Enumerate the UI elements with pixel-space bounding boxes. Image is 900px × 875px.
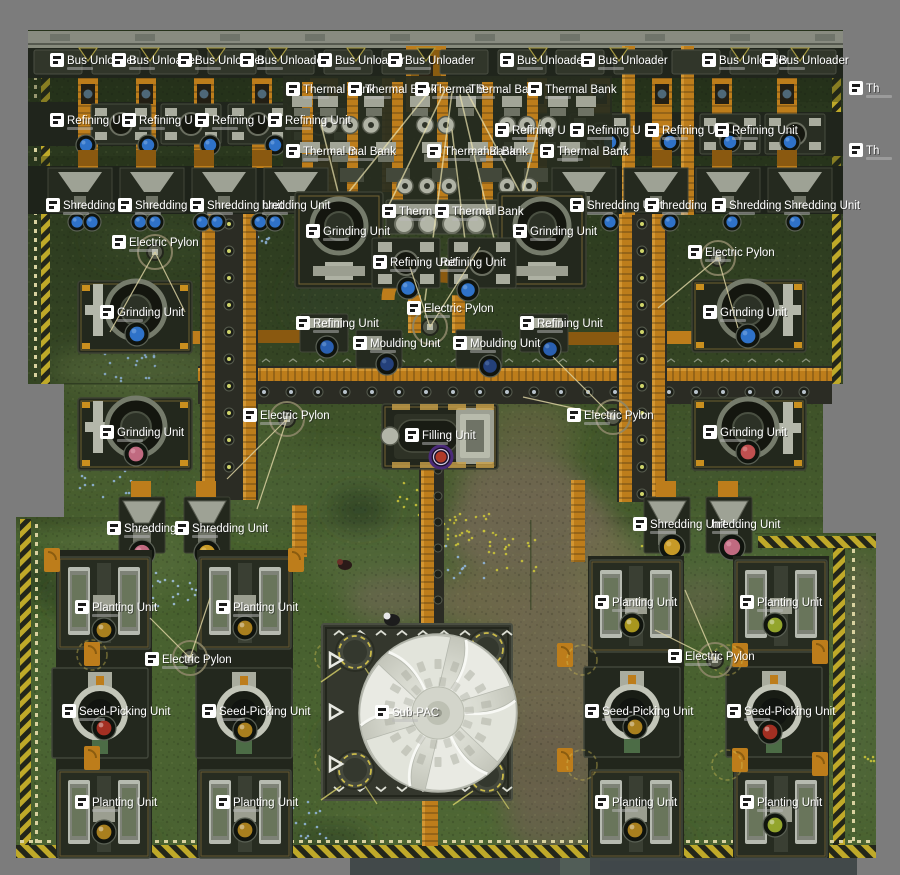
svg-text:Seed-Picking Unit: Seed-Picking Unit <box>79 706 171 718</box>
svg-text:Shredding: Shredding <box>135 200 187 212</box>
svg-text:mal Bank: mal Bank <box>480 146 528 158</box>
svg-text:Refining Unit: Refining Unit <box>732 125 799 137</box>
svg-text:Refining U: Refining U <box>67 115 121 127</box>
svg-text:Shredding: Shredding <box>63 200 115 212</box>
svg-text:Bus Unloader: Bus Unloader <box>517 55 587 67</box>
svg-text:Grinding Unit: Grinding Unit <box>530 226 598 238</box>
svg-text:Refining U: Refining U <box>587 125 641 137</box>
svg-text:Planting Unit: Planting Unit <box>233 797 299 809</box>
svg-text:Refining U: Refining U <box>512 125 566 137</box>
svg-text:Planting Unit: Planting Unit <box>92 602 158 614</box>
svg-text:Bus Unloader: Bus Unloader <box>598 55 668 67</box>
svg-text:Th: Th <box>866 83 879 95</box>
svg-text:hredding Unit: hredding Unit <box>262 200 331 212</box>
svg-text:Electric Pylon: Electric Pylon <box>685 651 755 663</box>
svg-text:Grinding Unit: Grinding Unit <box>323 226 391 238</box>
svg-text:Refining U: Refining U <box>139 115 193 127</box>
svg-text:Bus Unloader: Bus Unloader <box>779 55 849 67</box>
svg-text:Electric Pylon: Electric Pylon <box>260 410 330 422</box>
svg-text:Electric Pylon: Electric Pylon <box>584 410 654 422</box>
svg-text:Electric Pylon: Electric Pylon <box>162 654 232 666</box>
svg-text:Shredding: Shredding <box>729 200 781 212</box>
svg-text:Planting Unit: Planting Unit <box>757 797 823 809</box>
svg-text:Thermal Bank: Thermal Bank <box>557 146 629 158</box>
svg-text:mal Bank: mal Bank <box>348 146 396 158</box>
svg-text:Shredding Unit: Shredding Unit <box>784 200 861 212</box>
svg-text:Planting Unit: Planting Unit <box>92 797 158 809</box>
svg-text:Moulding Unit: Moulding Unit <box>370 338 441 350</box>
svg-text:hredding Unit: hredding Unit <box>712 519 781 531</box>
svg-text:Planting Unit: Planting Unit <box>612 797 678 809</box>
svg-text:Bus Unloader: Bus Unloader <box>67 55 137 67</box>
svg-text:Planting Unit: Planting Unit <box>612 597 678 609</box>
svg-text:Refining U: Refining U <box>662 125 716 137</box>
svg-text:Seed-Picking Unit: Seed-Picking Unit <box>602 706 694 718</box>
svg-text:Moulding Unit: Moulding Unit <box>470 338 541 350</box>
svg-text:Bus Unloader: Bus Unloader <box>257 55 327 67</box>
svg-text:Bus Unloader: Bus Unloader <box>195 55 265 67</box>
svg-text:Planting Unit: Planting Unit <box>757 597 823 609</box>
svg-text:Filling Unit: Filling Unit <box>422 430 476 442</box>
svg-text:Grinding Unit: Grinding Unit <box>720 427 788 439</box>
svg-text:Therm: Therm <box>399 206 432 218</box>
svg-text:Refining Unit: Refining Unit <box>285 115 352 127</box>
svg-text:Grinding Unit: Grinding Unit <box>720 307 788 319</box>
svg-text:Grinding Unit: Grinding Unit <box>117 307 185 319</box>
svg-text:Shredding: Shredding <box>124 523 176 535</box>
svg-text:Sub-PAC: Sub-PAC <box>392 707 439 719</box>
svg-text:Th: Th <box>866 145 879 157</box>
svg-text:Grinding Unit: Grinding Unit <box>117 427 185 439</box>
svg-text:Seed-Picking Unit: Seed-Picking Unit <box>219 706 311 718</box>
svg-text:Thermal Bank: Thermal Bank <box>452 206 524 218</box>
svg-text:Thermal Bank: Thermal Bank <box>545 84 617 96</box>
svg-text:Electric Pylon: Electric Pylon <box>424 303 494 315</box>
svg-text:Refining U: Refining U <box>212 115 266 127</box>
svg-text:Electric Pylon: Electric Pylon <box>705 247 775 259</box>
svg-text:Refining Unit: Refining Unit <box>313 318 380 330</box>
svg-text:Refining Unit: Refining Unit <box>440 257 507 269</box>
svg-text:Seed-Picking Unit: Seed-Picking Unit <box>744 706 836 718</box>
svg-text:Refining Unit: Refining Unit <box>537 318 604 330</box>
svg-text:Electric Pylon: Electric Pylon <box>129 237 199 249</box>
svg-text:Planting Unit: Planting Unit <box>233 602 299 614</box>
svg-text:hredding: hredding <box>662 200 707 212</box>
svg-text:Bus Unloader: Bus Unloader <box>405 55 475 67</box>
svg-text:Shredding Unit: Shredding Unit <box>192 523 269 535</box>
